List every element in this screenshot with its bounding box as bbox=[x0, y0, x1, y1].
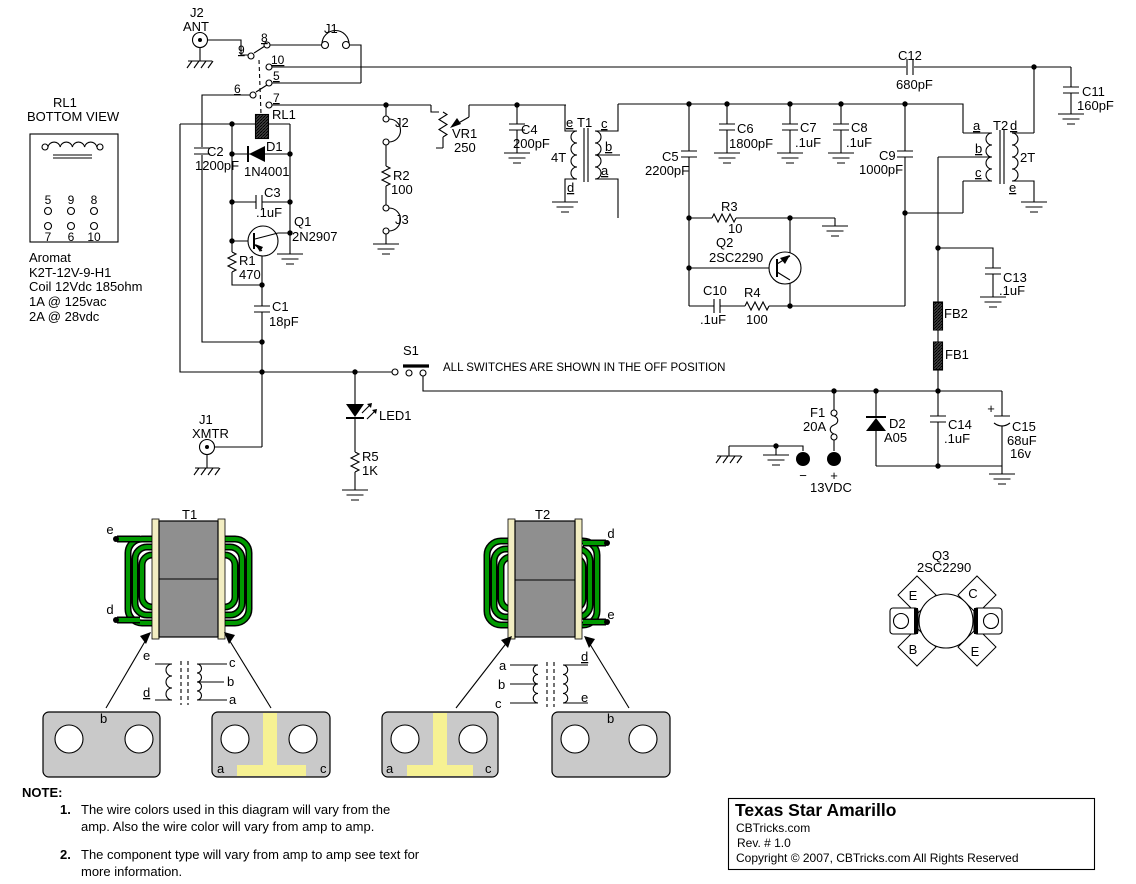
t2-win-d: d bbox=[581, 649, 588, 664]
d2-ref: D2 bbox=[889, 416, 906, 431]
title-site: CBTricks.com bbox=[736, 821, 810, 835]
relay-bottom-view: RL1 BOTTOM VIEW 5 9 8 7 6 10 Aromat K2T-… bbox=[27, 95, 142, 324]
jumper-J1 bbox=[322, 42, 350, 49]
c4-ref: C4 bbox=[521, 122, 538, 137]
pin-10: 10 bbox=[271, 53, 285, 67]
r3-ref: R3 bbox=[721, 199, 738, 214]
q1-val: 2N2907 bbox=[292, 229, 338, 244]
power-terminals bbox=[716, 451, 841, 466]
t1-e: e bbox=[566, 115, 573, 130]
c3-ref: C3 bbox=[264, 185, 281, 200]
t2-d: d bbox=[1010, 118, 1017, 133]
relay-coil-spec: Coil 12Vdc 185ohm bbox=[29, 279, 142, 294]
t2-turns: 2T bbox=[1020, 150, 1035, 165]
note1-line2: amp. Also the wire color will vary from … bbox=[81, 819, 374, 834]
t2-lug-b: b bbox=[607, 711, 614, 726]
q3-part: 2SC2290 bbox=[917, 560, 971, 575]
q3-pin-b: B bbox=[909, 642, 918, 657]
note1-line1: The wire colors used in this diagram wil… bbox=[81, 802, 390, 817]
s1-ref: S1 bbox=[403, 343, 419, 358]
t1-win-b: b bbox=[227, 674, 234, 689]
t2-win-a: a bbox=[499, 658, 507, 673]
rl1-pin5: 5 bbox=[45, 193, 52, 207]
note2-line2: more information. bbox=[81, 864, 182, 879]
t1-lead-d: d bbox=[106, 602, 113, 617]
t1-b: b bbox=[605, 139, 612, 154]
t1-a: a bbox=[601, 163, 609, 178]
r5-val: 1K bbox=[362, 463, 378, 478]
pin-9: 9 bbox=[238, 43, 245, 57]
t2-c: c bbox=[975, 165, 982, 180]
q2-val: 2SC2290 bbox=[709, 250, 763, 265]
t1-lug-c: c bbox=[320, 761, 327, 776]
r4-ref: R4 bbox=[744, 285, 761, 300]
q3-pin-c: C bbox=[968, 586, 977, 601]
t1-ref: T1 bbox=[577, 115, 592, 130]
d1-val: 1N4001 bbox=[244, 164, 290, 179]
switch-note: ALL SWITCHES ARE SHOWN IN THE OFF POSITI… bbox=[443, 362, 725, 374]
relay-detail-ref: RL1 bbox=[53, 95, 77, 110]
r2-ref: R2 bbox=[393, 168, 410, 183]
relay-rating2: 2A @ 28vdc bbox=[29, 309, 100, 324]
c9-val: 1000pF bbox=[859, 162, 903, 177]
t2-a: a bbox=[973, 118, 981, 133]
j2-jumper-ref: J2 bbox=[395, 115, 409, 130]
t2-lead-d: d bbox=[607, 526, 614, 541]
t1-d: d bbox=[567, 180, 574, 195]
r5-ref: R5 bbox=[362, 449, 379, 464]
j2-ant-ref: J2 bbox=[190, 5, 204, 20]
title: Texas Star Amarillo bbox=[735, 800, 896, 820]
c5-val: 2200pF bbox=[645, 163, 689, 178]
t2-e: e bbox=[1009, 180, 1016, 195]
c12-val: 680pF bbox=[896, 77, 933, 92]
j3-jumper-ref: J3 bbox=[395, 212, 409, 227]
fb1-ref: FB1 bbox=[945, 347, 969, 362]
t1-lead-e: e bbox=[106, 522, 113, 537]
c8-val: .1uF bbox=[846, 135, 872, 150]
c1-val: 18pF bbox=[269, 314, 299, 329]
relay-part: K2T-12V-9-H1 bbox=[29, 265, 111, 280]
t1-lug-b: b bbox=[100, 711, 107, 726]
c6-ref: C6 bbox=[737, 121, 754, 136]
c15-plus: + bbox=[987, 401, 995, 416]
note2-num: 2. bbox=[60, 847, 71, 862]
c2-val: 1200pF bbox=[195, 158, 239, 173]
c12-ref: C12 bbox=[898, 48, 922, 63]
t2-lug-a: a bbox=[386, 761, 394, 776]
pin-5: 5 bbox=[273, 69, 280, 83]
c7-ref: C7 bbox=[800, 120, 817, 135]
fb2-ref: FB2 bbox=[944, 306, 968, 321]
pin-7: 7 bbox=[273, 91, 280, 105]
t2-b: b bbox=[975, 141, 982, 156]
t2-detail-ref: T2 bbox=[535, 507, 550, 522]
rl1-ref: RL1 bbox=[272, 107, 296, 122]
f1-val: 20A bbox=[803, 419, 826, 434]
schematic-page: J2 ANT J1 8 9 10 5 6 7 RL1 C2 1200pF D1 … bbox=[0, 0, 1136, 884]
c11-val: 160pF bbox=[1077, 98, 1114, 113]
t2-win-c: c bbox=[495, 696, 502, 711]
j1-xmtr-ref: J1 bbox=[199, 412, 213, 427]
vr1-ref: VR1 bbox=[452, 126, 477, 141]
t1-detail-ref: T1 bbox=[182, 507, 197, 522]
rl1-pin7: 7 bbox=[45, 230, 52, 244]
j1-xmtr-label: XMTR bbox=[192, 426, 229, 441]
d2-val: A05 bbox=[884, 430, 907, 445]
rl1-pin9: 9 bbox=[68, 193, 75, 207]
wires bbox=[180, 31, 1079, 487]
c6-val: 1800pF bbox=[729, 136, 773, 151]
f1-ref: F1 bbox=[810, 405, 825, 420]
c10-ref: C10 bbox=[703, 283, 727, 298]
vr1-val: 250 bbox=[454, 140, 476, 155]
r1-ref: R1 bbox=[239, 253, 256, 268]
c8-ref: C8 bbox=[851, 120, 868, 135]
t2-ref: T2 bbox=[993, 118, 1008, 133]
c14-ref: C14 bbox=[948, 417, 972, 432]
q3-pin-e2: E bbox=[971, 644, 980, 659]
t1-win-e: e bbox=[143, 648, 150, 663]
c3-val: .1uF bbox=[256, 205, 282, 220]
schematic-labels: J2 ANT J1 8 9 10 5 6 7 RL1 C2 1200pF D1 … bbox=[183, 5, 1114, 495]
schematic-canvas: J2 ANT J1 8 9 10 5 6 7 RL1 C2 1200pF D1 … bbox=[0, 0, 1136, 884]
note1-num: 1. bbox=[60, 802, 71, 817]
c5-ref: C5 bbox=[662, 149, 679, 164]
c15-val2: 16v bbox=[1010, 446, 1031, 461]
c1-ref: C1 bbox=[272, 299, 289, 314]
t1-detail: T1 e d e d c b a b a c bbox=[43, 507, 330, 777]
t1-win-a: a bbox=[229, 692, 237, 707]
led1-ref: LED1 bbox=[379, 408, 412, 423]
q1-ref: Q1 bbox=[294, 214, 311, 229]
d1-ref: D1 bbox=[266, 139, 283, 154]
c2-ref: C2 bbox=[207, 144, 224, 159]
r3-val: 10 bbox=[728, 221, 742, 236]
t1-win-c: c bbox=[229, 655, 236, 670]
c7-val: .1uF bbox=[795, 135, 821, 150]
r4-val: 100 bbox=[746, 312, 768, 327]
t1-c: c bbox=[601, 116, 608, 131]
t2-win-b: b bbox=[498, 677, 505, 692]
pin-6: 6 bbox=[234, 82, 241, 96]
diode-D1 bbox=[248, 146, 265, 162]
supply-label: 13VDC bbox=[810, 480, 852, 495]
title-block: Texas Star Amarillo CBTricks.com Rev. # … bbox=[729, 799, 1095, 870]
relay-detail-view: BOTTOM VIEW bbox=[27, 109, 120, 124]
j2-ant-label: ANT bbox=[183, 19, 209, 34]
relay-rating1: 1A @ 125vac bbox=[29, 294, 107, 309]
title-copyright: Copyright © 2007, CBTricks.com All Right… bbox=[736, 851, 1019, 865]
q3-detail: Q3 2SC2290 E C B E bbox=[890, 548, 1002, 666]
q2-ref: Q2 bbox=[716, 235, 733, 250]
diode-D2 bbox=[866, 417, 886, 431]
relay-coil-RL1 bbox=[256, 115, 269, 139]
r1-val: 470 bbox=[239, 267, 261, 282]
notes-section: NOTE: 1. The wire colors used in this di… bbox=[22, 785, 420, 879]
pin-8: 8 bbox=[261, 31, 268, 45]
minus-terminal: − bbox=[799, 468, 807, 483]
title-rev: Rev. # 1.0 bbox=[737, 836, 791, 850]
t2-lead-e: e bbox=[607, 607, 614, 622]
t2-detail: T2 d e a b c d e a c b bbox=[382, 507, 670, 777]
c10-val: .1uF bbox=[700, 312, 726, 327]
rl1-pin8: 8 bbox=[91, 193, 98, 207]
t1-lug-a: a bbox=[217, 761, 225, 776]
t2-lug-c: c bbox=[485, 761, 492, 776]
switch-S1 bbox=[392, 366, 429, 376]
t1-win-d: d bbox=[143, 685, 150, 700]
rl1-pin6: 6 bbox=[68, 230, 75, 244]
note-heading: NOTE: bbox=[22, 785, 62, 800]
t1-turns: 4T bbox=[551, 150, 566, 165]
q3-pin-e1: E bbox=[909, 588, 918, 603]
relay-mfr: Aromat bbox=[29, 250, 71, 265]
t2-win-e: e bbox=[581, 690, 588, 705]
note2-line1: The component type will vary from amp to… bbox=[81, 847, 420, 862]
c4-val: 200pF bbox=[513, 136, 550, 151]
c14-val: .1uF bbox=[944, 431, 970, 446]
c9-ref: C9 bbox=[879, 148, 896, 163]
c15-ref: C15 bbox=[1012, 419, 1036, 434]
r2-val: 100 bbox=[391, 182, 413, 197]
j1-top-ref: J1 bbox=[324, 21, 338, 36]
c13-val: .1uF bbox=[999, 283, 1025, 298]
rl1-pin10: 10 bbox=[87, 230, 101, 244]
c11-ref: C11 bbox=[1082, 84, 1105, 99]
transistor-Q2 bbox=[769, 222, 848, 284]
